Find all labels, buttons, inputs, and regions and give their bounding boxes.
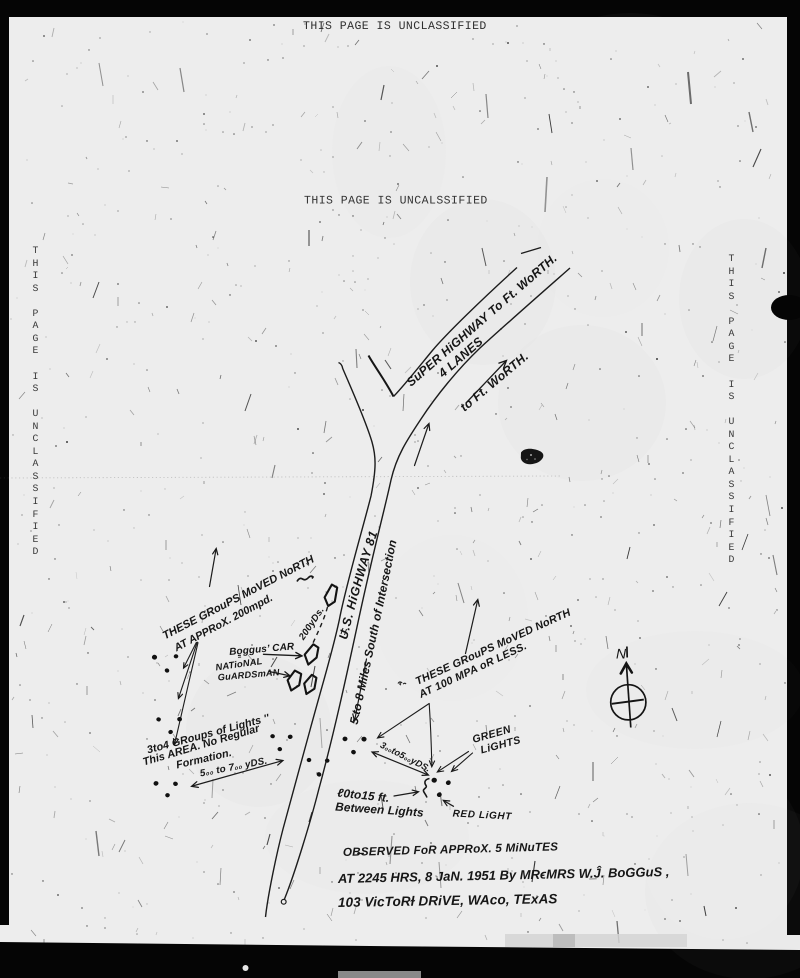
svg-text:S: S	[729, 491, 735, 502]
svg-text:E: E	[33, 345, 39, 356]
svg-text:S: S	[729, 291, 735, 302]
svg-text:I: I	[729, 379, 735, 390]
svg-text:T: T	[729, 253, 735, 264]
svg-text:103 VicToRɫ DRiVE, WAco, TEx: 103 VicToRɫ DRiVE, WAco, TExAS	[338, 891, 558, 910]
svg-text:I: I	[33, 371, 39, 382]
svg-text:L: L	[729, 454, 735, 465]
svg-text:S: S	[33, 283, 39, 294]
svg-text:D: D	[33, 546, 39, 557]
svg-text:C: C	[33, 433, 39, 444]
svg-text:L: L	[33, 446, 39, 457]
svg-text:C: C	[729, 441, 735, 452]
svg-text:S: S	[33, 383, 39, 394]
svg-text:I: I	[729, 529, 735, 540]
svg-text:A: A	[729, 466, 735, 477]
svg-text:3₀₀to5₀₀yDS.: 3₀₀to5₀₀yDS.	[379, 740, 433, 774]
svg-text:N: N	[729, 429, 735, 440]
svg-text:S: S	[33, 483, 39, 494]
svg-text:S: S	[729, 479, 735, 490]
svg-text:A: A	[729, 328, 735, 339]
svg-text:THIS PAGE IS UNCALSSIFIED: THIS PAGE IS UNCALSSIFIED	[304, 195, 488, 208]
svg-text:F: F	[729, 517, 735, 528]
svg-text:200yDs.: 200yDs.	[296, 605, 327, 643]
svg-text:N: N	[616, 646, 627, 662]
svg-text:S: S	[729, 391, 735, 402]
svg-text:I: I	[33, 496, 39, 507]
svg-text:G: G	[729, 341, 735, 352]
svg-text:N: N	[33, 421, 39, 432]
svg-text:P: P	[33, 308, 39, 319]
svg-text:A: A	[33, 458, 39, 469]
svg-text:U: U	[729, 416, 735, 427]
svg-text:P: P	[729, 316, 735, 327]
svg-text:THIS PAGE IS UNCLASSIFIED: THIS PAGE IS UNCLASSIFIED	[303, 20, 487, 33]
svg-text:I: I	[33, 270, 39, 281]
svg-text:I: I	[729, 278, 735, 289]
svg-text:H: H	[729, 266, 735, 277]
svg-text:E: E	[729, 353, 735, 364]
svg-text:F: F	[33, 509, 39, 520]
svg-text:E: E	[33, 534, 39, 545]
svg-text:U: U	[33, 408, 39, 419]
svg-text:S: S	[33, 471, 39, 482]
svg-text:I: I	[729, 504, 735, 515]
svg-text:E: E	[729, 542, 735, 553]
svg-text:T: T	[33, 245, 39, 256]
svg-text:I: I	[33, 521, 39, 532]
svg-text:H: H	[33, 258, 39, 269]
svg-text:G: G	[33, 333, 39, 344]
svg-text:A: A	[33, 320, 39, 331]
svg-text:D: D	[729, 554, 735, 565]
